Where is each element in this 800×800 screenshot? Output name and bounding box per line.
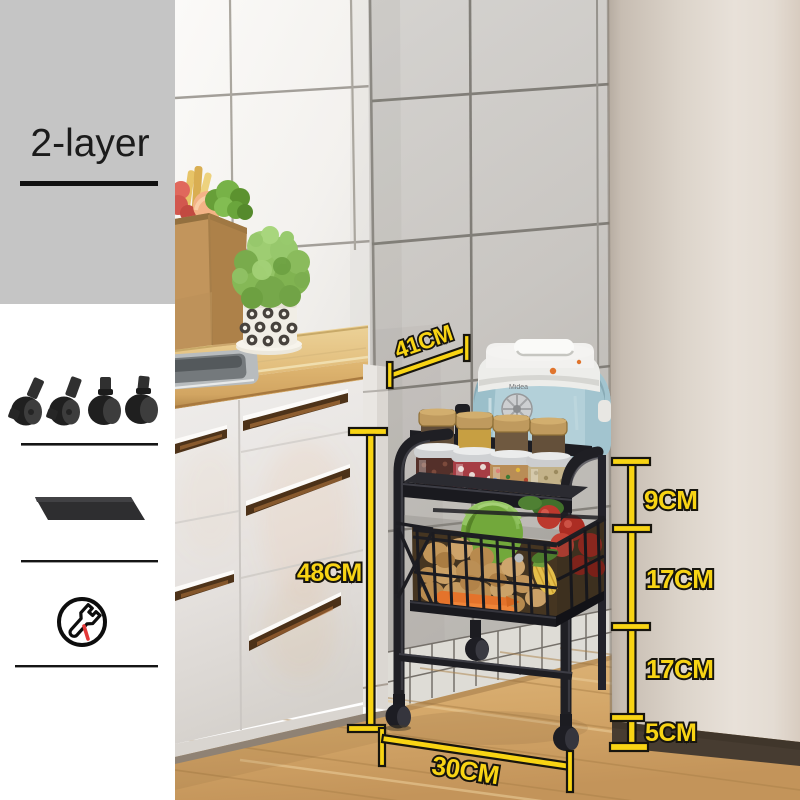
svg-text:48CM: 48CM [297,559,362,587]
svg-text:17CM: 17CM [646,654,713,684]
svg-text:Midea: Midea [509,384,528,391]
svg-text:17CM: 17CM [646,564,713,594]
svg-text:2-layer: 2-layer [30,122,149,165]
svg-text:9CM: 9CM [644,485,697,515]
svg-text:5CM: 5CM [645,719,696,747]
